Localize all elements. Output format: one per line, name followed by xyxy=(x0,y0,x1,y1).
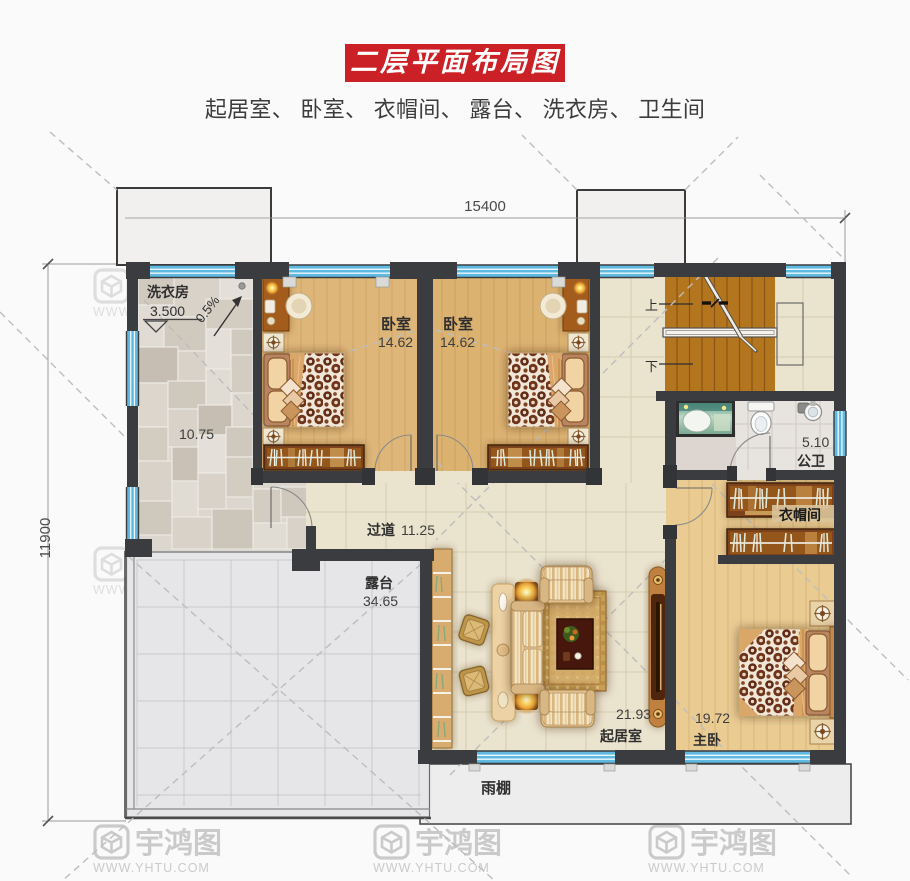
svg-text:上: 上 xyxy=(645,298,658,313)
svg-text:34.65: 34.65 xyxy=(363,593,398,609)
svg-text:衣帽间: 衣帽间 xyxy=(779,507,821,523)
svg-text:3.500: 3.500 xyxy=(150,303,185,319)
svg-text:雨棚: 雨棚 xyxy=(481,779,511,797)
svg-text:二层平面布局图: 二层平面布局图 xyxy=(350,47,561,77)
svg-text:起居室: 起居室 xyxy=(599,728,642,744)
svg-text:15400: 15400 xyxy=(464,198,506,215)
svg-text:卧室: 卧室 xyxy=(443,315,473,333)
svg-text:下: 下 xyxy=(645,359,658,374)
svg-text:11900: 11900 xyxy=(37,518,54,559)
svg-text:过道: 过道 xyxy=(367,522,395,538)
svg-text:起居室、 卧室、 衣帽间、 露台、 洗衣房、 卫生间: 起居室、 卧室、 衣帽间、 露台、 洗衣房、 卫生间 xyxy=(205,97,705,122)
svg-text:卧室: 卧室 xyxy=(381,315,411,333)
svg-text:公卫: 公卫 xyxy=(797,453,825,469)
svg-text:14.62: 14.62 xyxy=(378,334,413,350)
svg-text:10.75: 10.75 xyxy=(179,426,214,442)
svg-text:19.72: 19.72 xyxy=(695,710,730,726)
svg-text:11.25: 11.25 xyxy=(401,522,435,538)
svg-text:露台: 露台 xyxy=(365,575,393,591)
svg-text:洗衣房: 洗衣房 xyxy=(147,284,189,300)
svg-text:5.10: 5.10 xyxy=(802,434,829,450)
svg-text:21.93: 21.93 xyxy=(616,706,651,722)
svg-text:主卧: 主卧 xyxy=(693,732,721,748)
svg-text:14.62: 14.62 xyxy=(440,334,475,350)
